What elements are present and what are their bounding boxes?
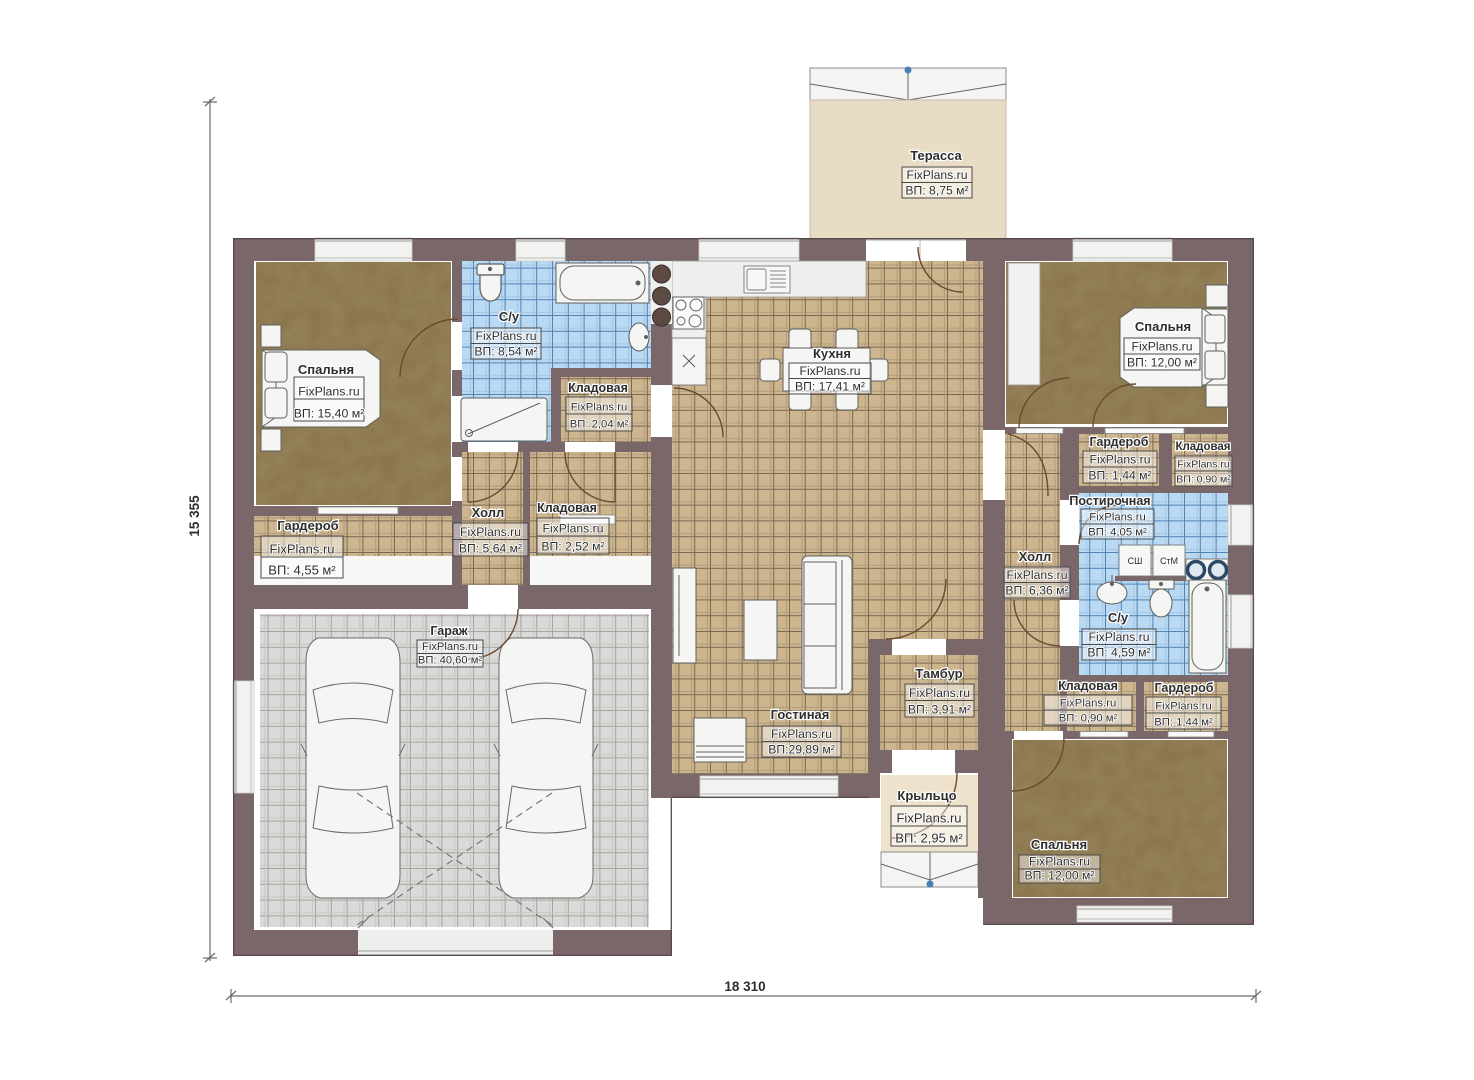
svg-text:ВП: 4,05 м²: ВП: 4,05 м² — [1088, 527, 1147, 539]
svg-text:FixPlans.ru: FixPlans.ru — [907, 168, 968, 182]
svg-text:FixPlans.ru: FixPlans.ru — [422, 641, 478, 653]
svg-text:FixPlans.ru: FixPlans.ru — [800, 364, 861, 378]
svg-text:ВП: 8,75 м²: ВП: 8,75 м² — [905, 184, 968, 198]
svg-text:FixPlans.ru: FixPlans.ru — [1090, 453, 1151, 467]
svg-text:FixPlans.ru: FixPlans.ru — [1007, 568, 1068, 582]
svg-text:FixPlans.ru: FixPlans.ru — [909, 686, 970, 700]
svg-text:Кладовая: Кладовая — [568, 381, 628, 395]
svg-text:FixPlans.ru: FixPlans.ru — [543, 522, 604, 536]
svg-text:СШ: СШ — [1128, 556, 1143, 566]
svg-text:ВП: 4,55 м²: ВП: 4,55 м² — [268, 563, 336, 578]
svg-text:ВП: 4,59 м²: ВП: 4,59 м² — [1087, 646, 1150, 660]
svg-text:FixPlans.ru: FixPlans.ru — [1029, 855, 1090, 869]
svg-text:Спальня: Спальня — [1135, 319, 1191, 334]
svg-text:ВП: 2,95 м²: ВП: 2,95 м² — [895, 831, 963, 846]
svg-text:FixPlans.ru: FixPlans.ru — [460, 525, 521, 539]
svg-text:FixPlans.ru: FixPlans.ru — [1089, 512, 1146, 524]
svg-text:ВП: 40,60 м²: ВП: 40,60 м² — [418, 655, 483, 667]
svg-text:15 355: 15 355 — [187, 495, 202, 537]
svg-text:С/у: С/у — [499, 309, 520, 324]
svg-text:Холл: Холл — [472, 505, 505, 520]
svg-text:Гостиная: Гостиная — [771, 707, 830, 722]
svg-text:FixPlans.ru: FixPlans.ru — [476, 329, 537, 343]
svg-text:FixPlans.ru: FixPlans.ru — [571, 402, 628, 414]
svg-text:Кладовая: Кладовая — [1058, 679, 1118, 693]
svg-text:ВП: 5,64 м²: ВП: 5,64 м² — [459, 542, 522, 556]
svg-text:ВП: 1,44 м²: ВП: 1,44 м² — [1154, 717, 1213, 729]
svg-text:Холл: Холл — [1019, 549, 1052, 564]
svg-text:FixPlans.ru: FixPlans.ru — [1177, 459, 1230, 471]
svg-text:СтМ: СтМ — [1160, 556, 1178, 566]
svg-text:Гардероб: Гардероб — [1154, 681, 1213, 695]
svg-text:Кладовая: Кладовая — [537, 501, 597, 515]
svg-text:Гардероб: Гардероб — [1089, 435, 1148, 449]
svg-text:Спальня: Спальня — [1031, 837, 1087, 852]
svg-text:Крыльцо: Крыльцо — [897, 788, 956, 803]
svg-text:Постирочная: Постирочная — [1069, 494, 1150, 508]
svg-text:Спальня: Спальня — [298, 362, 354, 377]
svg-text:ВП: 17,41 м²: ВП: 17,41 м² — [795, 380, 865, 394]
svg-text:Гардероб: Гардероб — [277, 518, 338, 533]
svg-text:ВП: 8,54 м²: ВП: 8,54 м² — [474, 345, 537, 359]
svg-text:ВП: 0,90 м²: ВП: 0,90 м² — [1176, 474, 1231, 486]
svg-text:Кладовая: Кладовая — [1175, 441, 1230, 453]
svg-text:Тамбур: Тамбур — [915, 666, 962, 681]
svg-text:Гараж: Гараж — [430, 624, 467, 638]
svg-text:FixPlans.ru: FixPlans.ru — [269, 542, 334, 557]
svg-text:FixPlans.ru: FixPlans.ru — [298, 385, 360, 399]
svg-text:ВП: 3,91 м²: ВП: 3,91 м² — [908, 703, 971, 717]
svg-text:ВП:29,89 м²: ВП:29,89 м² — [768, 743, 835, 757]
svg-text:ВП: 0,90 м²: ВП: 0,90 м² — [1059, 713, 1118, 725]
svg-text:Терасса: Терасса — [910, 148, 962, 163]
svg-text:ВП: 2,52 м²: ВП: 2,52 м² — [541, 540, 604, 554]
svg-text:18 310: 18 310 — [724, 979, 765, 994]
svg-text:FixPlans.ru: FixPlans.ru — [771, 727, 832, 741]
svg-text:FixPlans.ru: FixPlans.ru — [1089, 630, 1150, 644]
svg-text:ВП: 12,00 м²: ВП: 12,00 м² — [1127, 356, 1197, 370]
svg-text:FixPlans.ru: FixPlans.ru — [1155, 701, 1212, 713]
svg-text:FixPlans.ru: FixPlans.ru — [896, 811, 961, 826]
svg-text:ВП: 1,44 м²: ВП: 1,44 м² — [1088, 469, 1151, 483]
svg-text:Кухня: Кухня — [813, 346, 851, 361]
svg-text:ВП: 6,36 м²: ВП: 6,36 м² — [1005, 584, 1068, 598]
svg-text:ВП: 2,04 м²: ВП: 2,04 м² — [570, 419, 629, 431]
svg-text:С/у: С/у — [1108, 610, 1129, 625]
svg-text:FixPlans.ru: FixPlans.ru — [1132, 340, 1193, 354]
svg-text:FixPlans.ru: FixPlans.ru — [1060, 698, 1117, 710]
svg-text:ВП: 15,40 м²: ВП: 15,40 м² — [294, 407, 365, 421]
svg-text:ВП: 12,00 м²: ВП: 12,00 м² — [1025, 869, 1095, 883]
